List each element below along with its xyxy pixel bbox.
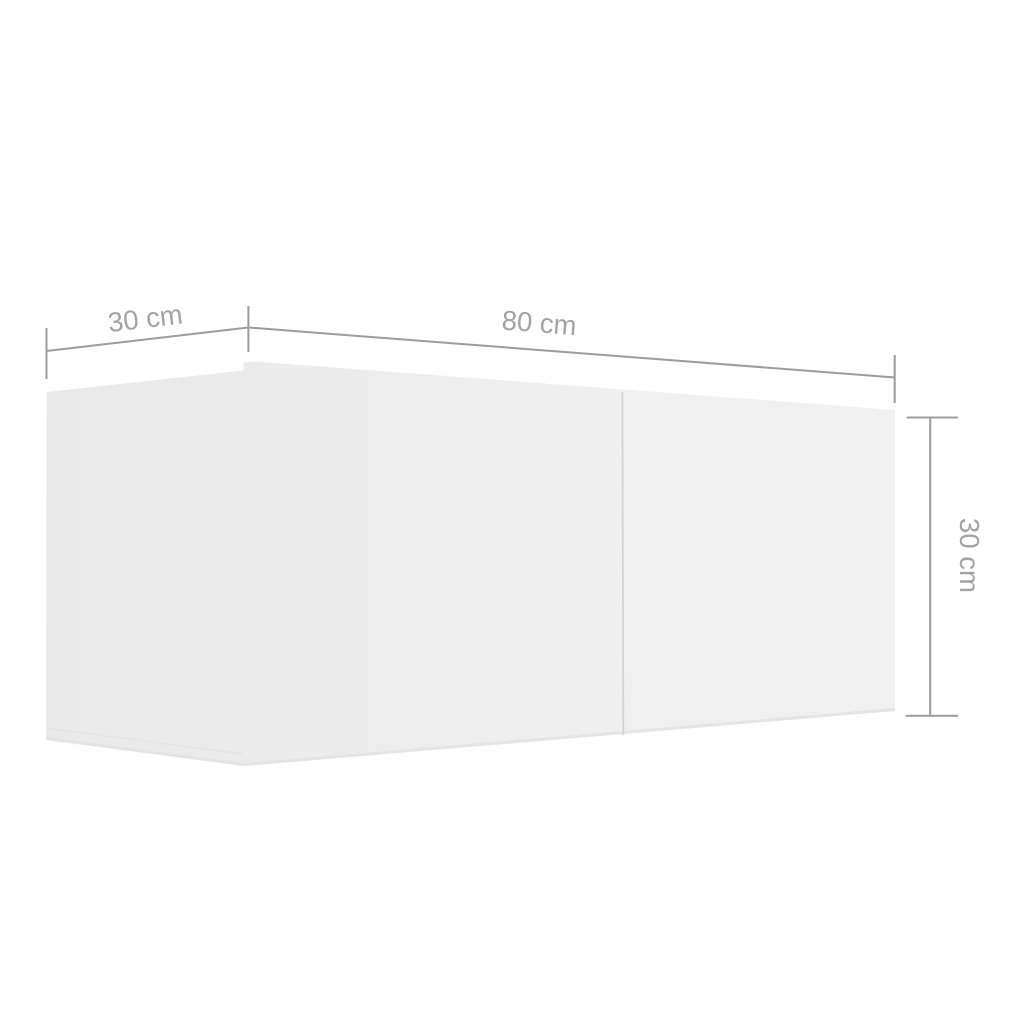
svg-text:30 cm: 30 cm [954, 518, 985, 593]
svg-text:80 cm: 80 cm [501, 304, 578, 341]
